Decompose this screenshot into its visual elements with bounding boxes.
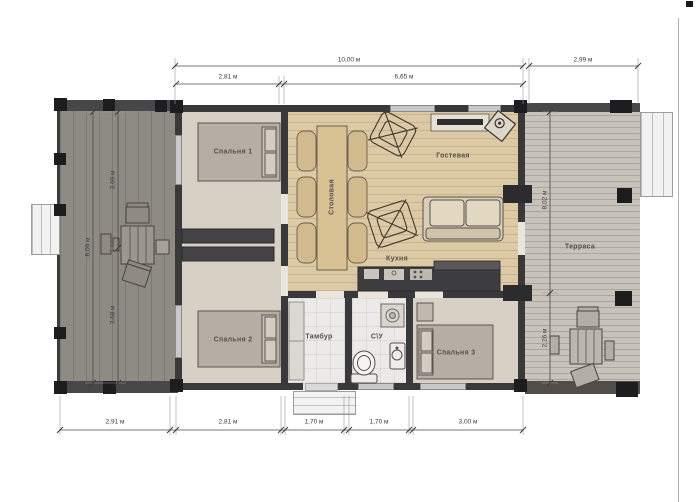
dim-bottom-entry: 1,70 м [305, 419, 324, 426]
vestibule-room [288, 298, 345, 383]
left-deck-bottom-edge [57, 381, 178, 393]
column-block-upper [503, 185, 532, 203]
wall-bedrooms [281, 112, 288, 383]
post [170, 379, 183, 392]
bedroom-3-label: Спальня 3 [437, 350, 476, 357]
window-bathroom [358, 383, 394, 390]
open-plan-room [288, 112, 518, 291]
bathroom-label: С\У [371, 334, 383, 341]
post [103, 99, 115, 111]
kitchen-label: Кухня [386, 256, 408, 263]
right-steps [640, 112, 673, 197]
bedroom-2-label: Спальня 2 [214, 337, 253, 344]
post [170, 100, 183, 113]
post [615, 291, 632, 306]
entry-porch [293, 391, 356, 415]
dim-left-lower: 3,68 м [110, 306, 117, 325]
post [616, 382, 638, 397]
dim-right-upper: 8,02 м [542, 191, 549, 210]
dim-left-upper: 3,69 м [110, 171, 117, 190]
post [514, 379, 527, 392]
post [103, 381, 116, 394]
page-corner-mark [686, 1, 693, 7]
dim-left-total: 8,00 м [85, 238, 92, 257]
dim-bottom-bedroom: 2,81 м [219, 419, 238, 426]
dim-top-total: 10,00 м [338, 57, 361, 64]
window-bedroom1 [175, 135, 182, 185]
post [514, 100, 527, 113]
wall-vestibule-bath [345, 295, 352, 383]
dim-bottom-deck: 2,91 м [106, 419, 125, 426]
window-top-living [468, 105, 501, 112]
post [54, 327, 66, 339]
terrace-door [518, 222, 525, 255]
wardrobe-zone [182, 229, 281, 262]
post [54, 204, 66, 216]
post [54, 153, 66, 165]
bathroom-door [358, 291, 388, 298]
post [54, 98, 67, 111]
bathroom-room [352, 298, 406, 383]
bedroom-2-room [182, 262, 281, 383]
vestibule-label: Тамбур [305, 334, 332, 341]
column-block-lower [503, 285, 532, 301]
bedroom-1-door [281, 194, 288, 224]
page-frame-line [678, 18, 679, 502]
bedroom-3-room [413, 298, 518, 383]
post [610, 100, 632, 113]
post [54, 381, 67, 394]
bedroom-2-door [281, 266, 288, 296]
floor-plan: Спальня 1 Спальня 2 Спальня 3 Столовая Г… [0, 0, 697, 502]
living-label: Гостевая [436, 153, 470, 160]
dim-top-left: 2,81 м [219, 74, 238, 81]
entry-threshold [305, 383, 338, 391]
post [617, 188, 632, 203]
bedroom-1-label: Спальня 1 [214, 149, 253, 156]
bedroom-3-door [415, 291, 443, 298]
dim-top-right: 6,65 м [395, 74, 414, 81]
post [155, 100, 167, 112]
left-deck [57, 100, 178, 392]
window-bedroom3 [420, 383, 466, 390]
wall-bath-bedroom3 [406, 295, 413, 383]
bedroom-1-room [182, 112, 281, 229]
vestibule-door [316, 291, 344, 298]
dim-top-terrace: 2,99 м [574, 57, 593, 64]
dim-bottom-wc: 1,70 м [370, 419, 389, 426]
terrace-label: Терраса [565, 244, 595, 251]
window-top-dining [390, 105, 435, 112]
dim-right-lower: 2,26 м [542, 329, 549, 348]
dim-bottom-bedroom3: 3,00 м [459, 419, 478, 426]
dining-label: Столовая [329, 179, 336, 215]
window-bedroom2 [175, 305, 182, 358]
